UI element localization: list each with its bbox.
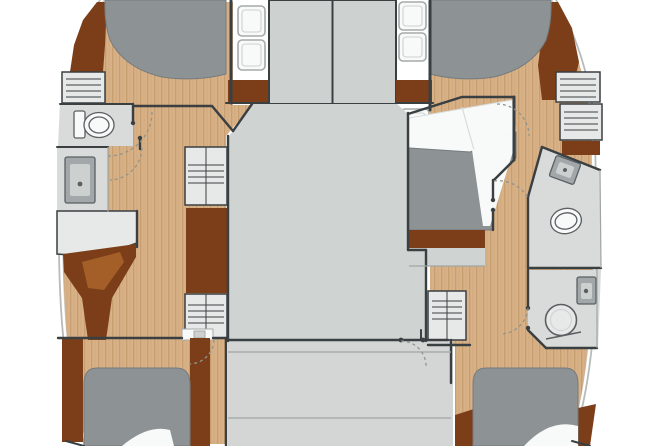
starboard-deck-trim: [396, 80, 432, 103]
cockpit-floor: [228, 341, 453, 446]
port-deck-trim: [228, 80, 268, 103]
starboard-shower-sink: [577, 277, 596, 304]
door-jamb: [491, 208, 495, 212]
port-aft-berth: [84, 368, 190, 446]
starboard-mid-trim: [562, 141, 600, 155]
floor-plan-svg: [0, 0, 655, 446]
door-jamb: [526, 326, 530, 330]
salon-floor: [228, 104, 426, 341]
port-toilet: [74, 111, 114, 138]
port-vanity-sink: [65, 157, 95, 203]
starboard-storage-b: [560, 104, 602, 140]
port-aft-trim-left: [62, 338, 83, 442]
sink-basin: [70, 164, 90, 196]
midship-berth-footboard: [409, 230, 485, 248]
port-inboard-trim: [186, 208, 227, 293]
port-aft-trim-right: [190, 338, 210, 446]
floor-plan: [0, 0, 655, 446]
port-forward-storage: [62, 72, 105, 103]
sink-drain: [78, 182, 83, 187]
door-jamb: [491, 198, 495, 202]
toilet-tank: [74, 111, 85, 138]
door-jamb: [421, 338, 426, 343]
port-aft-cabinet-inner: [194, 331, 205, 338]
sink-drain: [584, 289, 588, 293]
door-jamb: [131, 121, 135, 125]
